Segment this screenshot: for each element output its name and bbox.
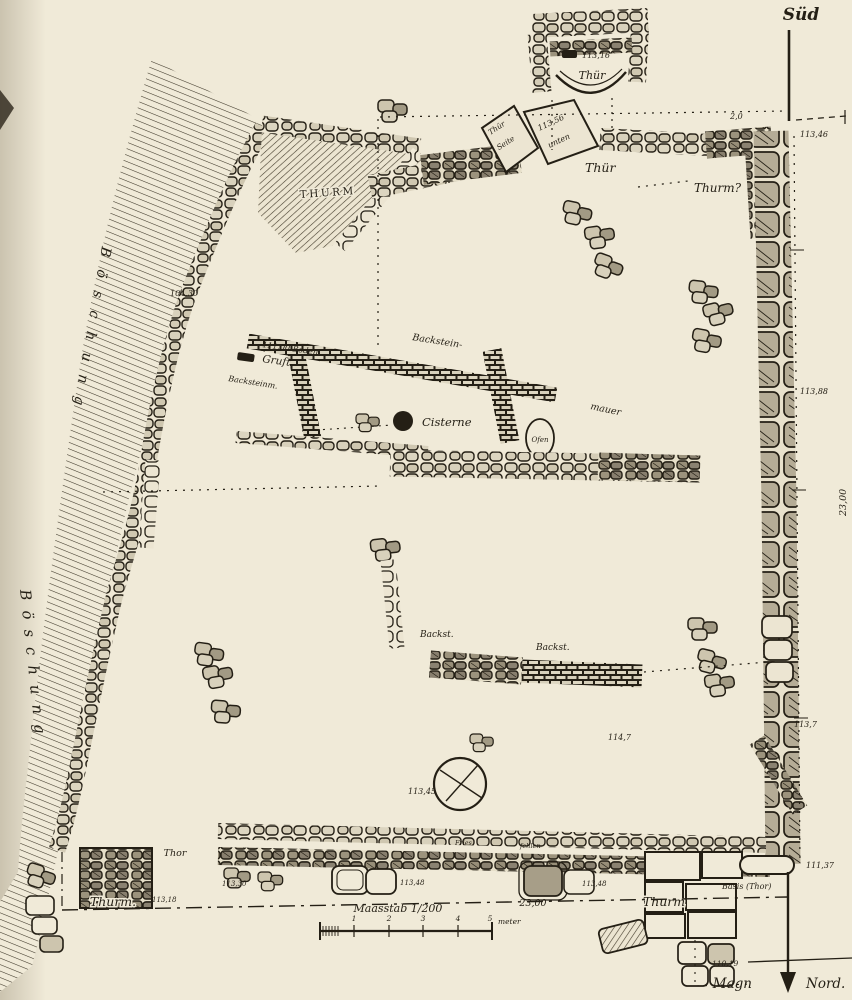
scale-unit-label: meter — [498, 917, 521, 926]
scale-tick-5: 5 — [488, 914, 493, 923]
cistern-dot — [393, 411, 413, 431]
elev-113-46: 113,46 — [800, 130, 828, 139]
scale-tick-3: 3 — [421, 914, 426, 923]
thor-label: Thor — [164, 848, 188, 859]
elev-113-45: 113,45 — [408, 787, 436, 796]
wall-note-fries: Fries — [454, 839, 473, 847]
elev-113-48-b: 113,48 — [582, 880, 607, 888]
site-plan: Thür Seite 113,56 unten 113,16 Thür — [0, 0, 852, 1000]
thurm-sw-label: Thurm. — [90, 894, 136, 909]
scale-tick-1: 1 — [352, 914, 357, 923]
elev-111-37: 111,37 — [806, 861, 835, 870]
elev-104-30: 104,30 — [170, 289, 198, 298]
sued-label: Süd — [783, 5, 820, 25]
thurm-se-label: Thurm — [643, 894, 685, 909]
elev-114-7: 114,7 — [608, 733, 632, 742]
elev-113-7: 113,7 — [794, 720, 818, 729]
thurm-ne-label: Thurm? — [694, 181, 742, 195]
middle-wall — [390, 463, 700, 469]
cisterne-label: Cisterne — [422, 415, 472, 429]
scale-label: Maasstab 1/200 — [353, 902, 443, 915]
scale-tick-2: 2 — [386, 914, 392, 923]
backst-label-b: Backst. — [535, 643, 570, 653]
wall-note-fehlen: fehlen — [519, 842, 541, 850]
basis-thor-label: Basis (Thor) — [721, 882, 771, 891]
ofen-label: Ofen — [532, 436, 549, 444]
apse-thuer-label: Thür — [579, 69, 607, 82]
elev-113-88: 113,88 — [800, 387, 828, 396]
elev-2-0: 2,0 — [729, 112, 743, 121]
backst-label-a: Backst. — [419, 630, 454, 640]
elev-113-48-a: 113,48 — [400, 879, 425, 887]
thuer-east-label: Thür — [585, 160, 616, 175]
apse-elevation: 113,16 — [582, 51, 610, 60]
magn-label: Magn — [712, 976, 752, 992]
plan-drawing: Thür Seite 113,56 unten 113,16 Thür — [0, 0, 852, 1000]
baseline-distance-label: 23,00 — [518, 898, 546, 909]
nord-label: Nord. — [805, 976, 845, 992]
elev-110-19: 110,19 — [712, 959, 738, 968]
elev-23-00-right: 23,00 — [838, 489, 849, 517]
scale-tick-4: 4 — [455, 914, 461, 923]
elev-113-30: 113,30 — [222, 880, 247, 888]
elev-113-18: 113,18 — [152, 896, 177, 904]
